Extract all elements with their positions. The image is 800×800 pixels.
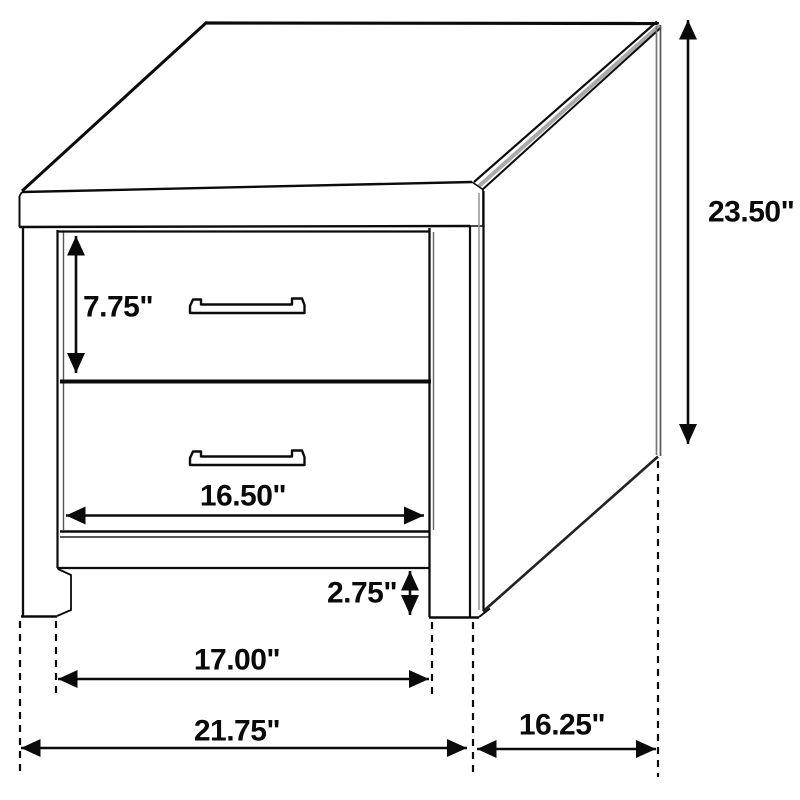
top-back-edge xyxy=(206,23,659,24)
dim-overall-height-label: 23.50" xyxy=(708,196,794,229)
slab-left-corner xyxy=(20,192,23,196)
top-right-edge-hatch xyxy=(478,25,660,187)
side-bottom-edge xyxy=(483,457,658,612)
dimensions xyxy=(21,20,688,749)
drawer1-handle xyxy=(190,299,305,314)
top-front-edge xyxy=(22,182,472,192)
dim-drawer-front-width-label: 16.50" xyxy=(200,480,286,513)
front-frame xyxy=(23,226,470,617)
dim-side-depth-label: 16.25" xyxy=(519,709,605,742)
side-panel xyxy=(479,25,661,612)
top-panel xyxy=(19,22,661,228)
slab-bottom-edge xyxy=(19,226,470,227)
slab-right-corner-cap xyxy=(470,182,483,226)
top-left-edge xyxy=(22,22,207,191)
top-right-edge-inner xyxy=(482,28,661,191)
dim-top-drawer-height-label: 7.75" xyxy=(83,291,153,324)
top-right-edge-outer xyxy=(474,22,657,183)
dim-overall-width-label: 21.75" xyxy=(194,715,280,748)
nightstand-dimension-svg: 7.75" 16.50" 2.75" 17.00" 21.75" 16.25" … xyxy=(0,0,800,800)
dim-base-clearance-label: 2.75" xyxy=(327,577,397,610)
left-leg-inner-face xyxy=(57,569,71,616)
legs xyxy=(21,569,490,618)
drawer2-handle xyxy=(190,451,305,466)
furniture-dimension-diagram: 7.75" 16.50" 2.75" 17.00" 21.75" 16.25" … xyxy=(0,0,800,800)
dim-between-legs-width-label: 17.00" xyxy=(194,644,280,677)
